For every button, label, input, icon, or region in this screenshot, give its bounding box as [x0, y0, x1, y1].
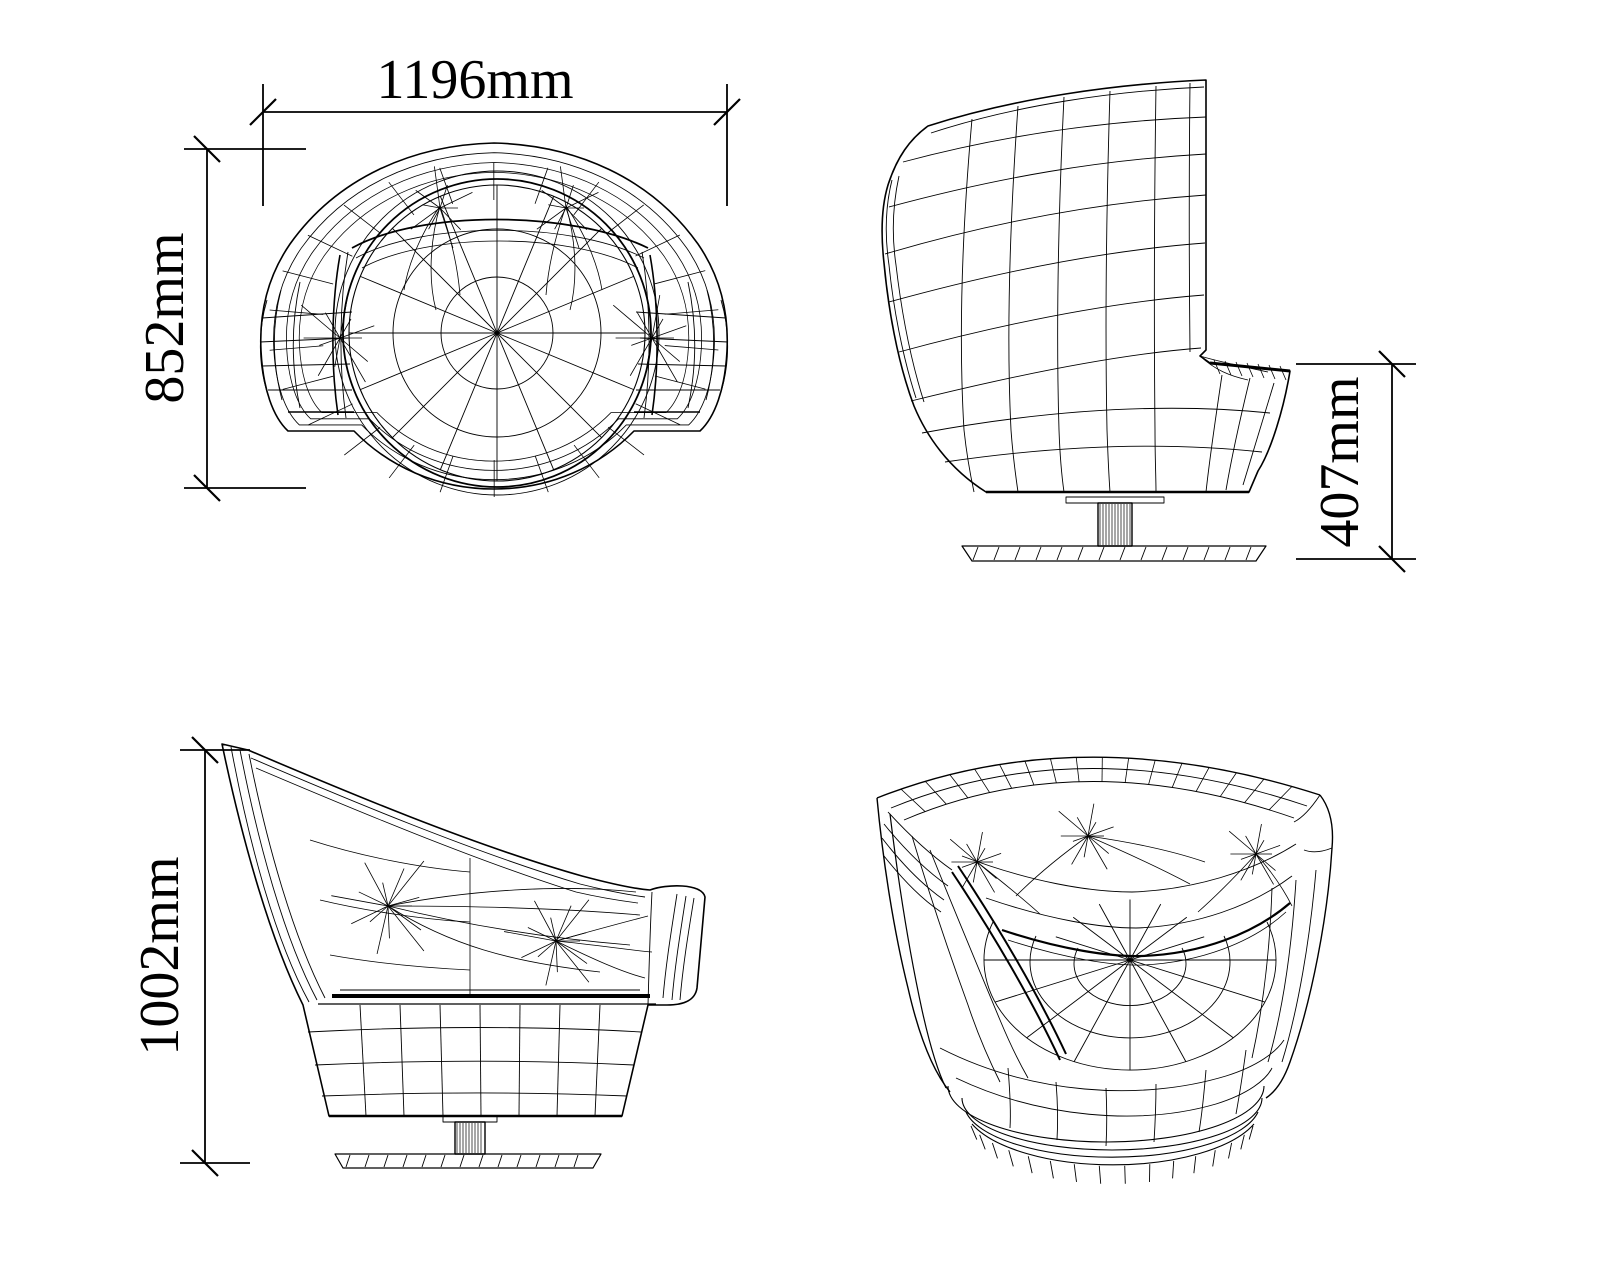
side-view-outline	[882, 80, 1290, 492]
side-elevation-right-view	[882, 80, 1290, 561]
side-view-wing-edge	[886, 176, 924, 402]
perspective-tuft-pleats	[977, 836, 1292, 914]
perspective-tuft-left	[950, 832, 1001, 892]
side-view-flange	[1066, 497, 1164, 503]
top-view-seat-spokes	[349, 185, 645, 481]
perspective-left-arm	[882, 812, 1066, 1088]
technical-drawing-sheet: 1196mm 852mm 407mm 1002mm	[0, 0, 1600, 1280]
dimension-label-seat-height: 407mm	[1309, 376, 1371, 547]
profile-view-armrest	[648, 892, 694, 1005]
profile-view-base-ticks	[346, 1155, 578, 1167]
profile-view-back-edges	[231, 747, 645, 1002]
profile-view-pedestal-hatch	[457, 1123, 481, 1153]
profile-view-skirt-mesh	[308, 1005, 641, 1116]
perspective-base-ticks	[971, 1126, 1253, 1184]
perspective-seat-spokes	[984, 900, 1276, 1071]
side-view-pedestal-hatch	[1100, 504, 1130, 545]
side-view-base-plate	[962, 546, 1266, 561]
profile-view-tuft-lower	[504, 900, 589, 986]
perspective-view	[877, 757, 1333, 1184]
perspective-skirt-mesh	[940, 1040, 1284, 1146]
top-plan-view	[260, 143, 728, 497]
dimension-label-overall-width: 1196mm	[376, 49, 573, 111]
profile-view-back-mesh	[310, 840, 652, 996]
perspective-tuft-center	[1059, 804, 1114, 870]
profile-view-seat-band	[318, 990, 656, 1004]
perspective-rim-mesh	[901, 757, 1292, 811]
side-view-base-ticks	[973, 547, 1251, 560]
wireframe-chair-drawing: 1196mm 852mm 407mm 1002mm	[0, 0, 1600, 1280]
side-view-back-mesh	[885, 83, 1270, 492]
profile-view-tuft-upper	[331, 861, 424, 954]
dimension-label-overall-depth: 852mm	[134, 232, 196, 403]
dimension-label-overall-height: 1002mm	[129, 856, 191, 1055]
side-elevation-left-view	[222, 744, 705, 1168]
perspective-tuft-right	[1229, 824, 1280, 884]
profile-view-pedestal-column	[455, 1122, 485, 1154]
profile-view-outline	[222, 744, 705, 1116]
profile-view-base-plate	[335, 1154, 601, 1168]
top-view-tuft-left	[301, 295, 374, 382]
side-view-seat-ledge	[1200, 356, 1290, 492]
